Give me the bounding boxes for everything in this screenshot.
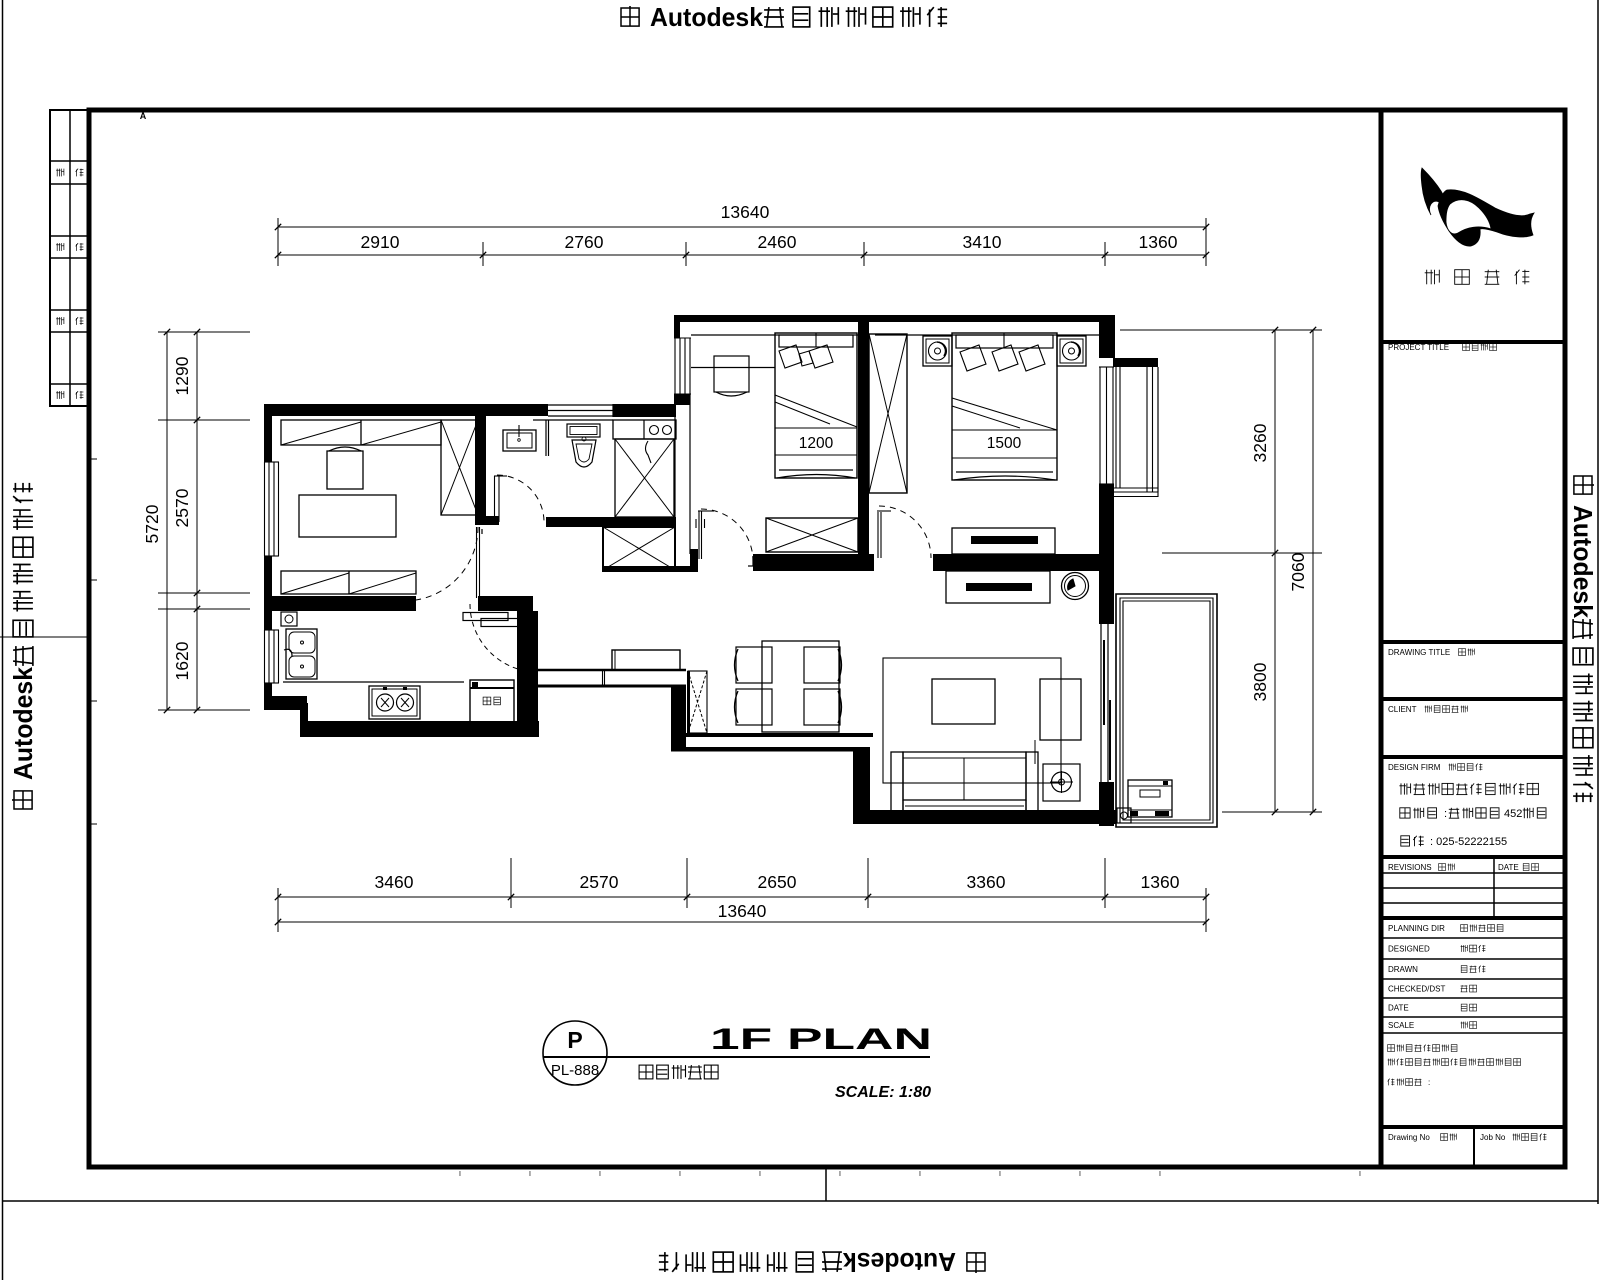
svg-text:DESIGN FIRM: DESIGN FIRM [1388, 763, 1441, 772]
svg-text:Autodesk: Autodesk [842, 1247, 956, 1277]
svg-text:3260: 3260 [1250, 423, 1270, 462]
svg-text:2460: 2460 [758, 232, 797, 252]
svg-text:2760: 2760 [565, 232, 604, 252]
svg-text:CHECKED/DST: CHECKED/DST [1388, 985, 1445, 994]
svg-text:3360: 3360 [967, 872, 1006, 892]
svg-text:I: I [759, 1171, 761, 1178]
svg-text:I: I [599, 1171, 601, 1178]
svg-text:REVISIONS: REVISIONS [1388, 863, 1432, 872]
svg-text:13640: 13640 [718, 901, 767, 921]
svg-text:Drawing No: Drawing No [1388, 1133, 1430, 1142]
svg-text:A: A [140, 111, 147, 121]
svg-text:I: I [679, 1171, 681, 1178]
svg-text:DESIGNED: DESIGNED [1388, 945, 1430, 954]
svg-text:1620: 1620 [172, 641, 192, 680]
svg-text:PROJECT TITLE: PROJECT TITLE [1388, 343, 1449, 352]
svg-text:Autodesk: Autodesk [8, 666, 38, 780]
svg-text:: 025-52222155: : 025-52222155 [1430, 836, 1507, 848]
svg-text:I: I [459, 1171, 461, 1178]
svg-text:I: I [1159, 1171, 1161, 1178]
svg-text:2910: 2910 [361, 232, 400, 252]
svg-text:1500: 1500 [987, 435, 1022, 452]
svg-text:DRAWN: DRAWN [1388, 965, 1418, 974]
svg-text:DATE: DATE [1498, 863, 1519, 872]
svg-text:1290: 1290 [172, 356, 192, 395]
svg-text:PLANNING DIR: PLANNING DIR [1388, 924, 1445, 933]
svg-text:1F PLAN: 1F PLAN [710, 1023, 932, 1056]
svg-text:I: I [1359, 1171, 1361, 1178]
svg-text:1360: 1360 [1141, 872, 1180, 892]
svg-text::: : [1428, 1078, 1430, 1087]
svg-text:I: I [1079, 1171, 1081, 1178]
svg-text:1360: 1360 [1139, 232, 1178, 252]
svg-text:I: I [999, 1171, 1001, 1178]
svg-text:2570: 2570 [172, 488, 192, 527]
svg-text:I: I [839, 1171, 841, 1178]
svg-text:PL-888: PL-888 [551, 1062, 599, 1079]
svg-text:Autodesk: Autodesk [1568, 505, 1598, 619]
svg-text:2650: 2650 [758, 872, 797, 892]
svg-text:13640: 13640 [721, 202, 770, 222]
svg-text:P: P [567, 1027, 582, 1053]
svg-text:3800: 3800 [1250, 662, 1270, 701]
svg-text:I: I [529, 1171, 531, 1178]
svg-text:Autodesk: Autodesk [650, 2, 764, 32]
svg-text:3460: 3460 [375, 872, 414, 892]
svg-text:452: 452 [1504, 808, 1522, 820]
svg-text:DATE: DATE [1388, 1004, 1409, 1013]
svg-text:3410: 3410 [963, 232, 1002, 252]
svg-text:7060: 7060 [1288, 552, 1308, 591]
svg-text:1200: 1200 [799, 435, 834, 452]
svg-text:2570: 2570 [580, 872, 619, 892]
svg-text:SCALE: SCALE [1388, 1021, 1414, 1030]
svg-text:Job No: Job No [1480, 1133, 1506, 1142]
svg-text:I: I [919, 1171, 921, 1178]
svg-text:5720: 5720 [142, 504, 162, 543]
svg-text:CLIENT: CLIENT [1388, 705, 1417, 714]
svg-text::: : [1444, 808, 1447, 820]
svg-text:DRAWING TITLE: DRAWING TITLE [1388, 648, 1450, 657]
svg-text:SCALE: 1:80: SCALE: 1:80 [835, 1084, 931, 1101]
